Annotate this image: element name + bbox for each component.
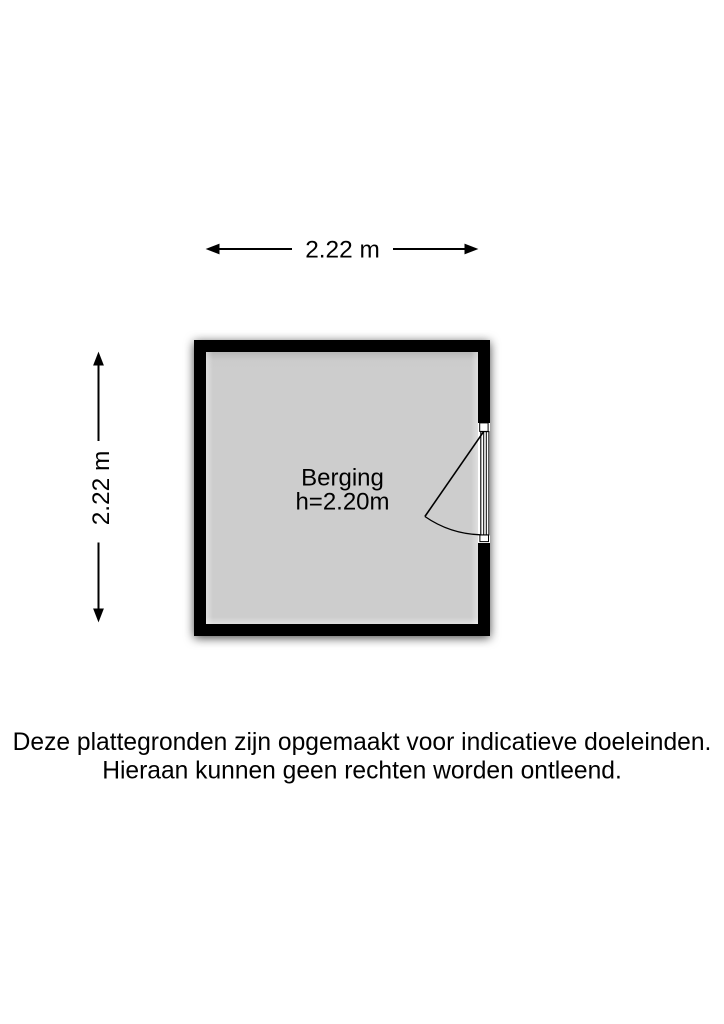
svg-text:2.22 m: 2.22 m [305,237,380,264]
svg-text:Deze plattegronden zijn opgema: Deze plattegronden zijn opgemaakt voor i… [13,729,712,756]
svg-text:2.22 m: 2.22 m [88,451,115,526]
svg-text:Berging: Berging [301,464,384,491]
svg-text:h=2.20m: h=2.20m [295,489,389,516]
svg-text:Hieraan kunnen geen rechten wo: Hieraan kunnen geen rechten worden ontle… [102,758,622,785]
